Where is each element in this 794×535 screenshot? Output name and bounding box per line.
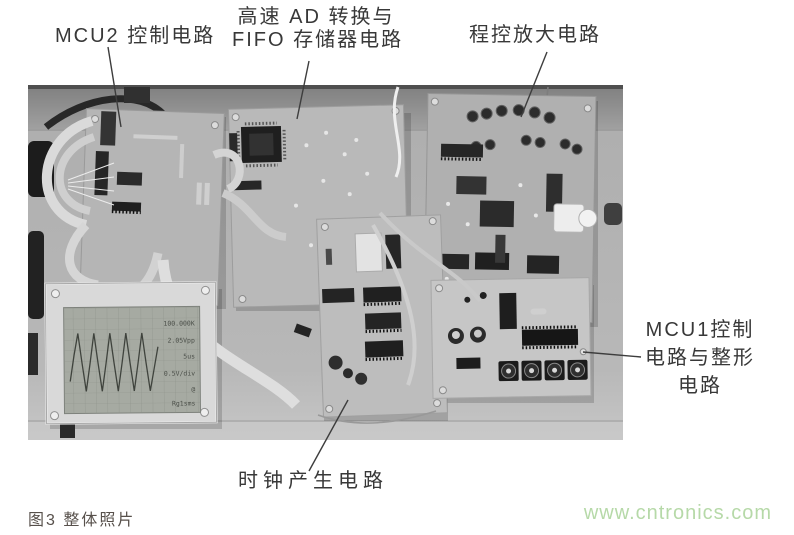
label-programmable-amplifier-circuit: 程控放大电路	[469, 24, 601, 47]
lcd-module: 100.000K 2.05Vpp 5us 0.5V/div @ Rg1sms	[45, 282, 216, 423]
figure-page: MCU2 控制电路 高速 AD 转换与 FIFO 存储器电路 程控放大电路 MC…	[0, 0, 794, 535]
label-mcu1-line3: 电路	[632, 372, 768, 400]
photo-scene: 100.000K 2.05Vpp 5us 0.5V/div @ Rg1sms	[28, 85, 623, 440]
bnc-plug	[604, 203, 622, 225]
label-ad-fifo-line1: 高速 AD 转换与	[232, 6, 400, 29]
lcd-readout-frequency: 100.000K	[163, 319, 194, 327]
circuit-boards-photo: 100.000K 2.05Vpp 5us 0.5V/div @ Rg1sms	[28, 85, 623, 440]
label-mcu2-control-circuit: MCU2 控制电路	[55, 25, 215, 48]
label-clock-generation-circuit: 时钟产生电路	[238, 470, 388, 493]
lcd-readout-timebase: 5us	[183, 352, 195, 360]
lcd-readout-status: Rg1sms	[172, 399, 196, 407]
lcd-readout-vpp: 2.05Vpp	[167, 336, 195, 344]
mcu1-board	[431, 278, 591, 399]
label-mcu1-line1: MCU1控制	[632, 316, 768, 344]
label-mcu1-control-shaping-circuit: MCU1控制 电路与整形 电路	[632, 316, 768, 400]
lcd-readout-vdiv: 0.5V/div	[164, 369, 195, 377]
label-ad-fifo-line2: FIFO 存储器电路	[232, 29, 400, 52]
figure-caption: 图3 整体照片	[28, 506, 135, 530]
label-ad-fifo-circuit: 高速 AD 转换与 FIFO 存储器电路	[232, 6, 400, 52]
watermark-url: www.cntronics.com	[584, 502, 772, 525]
lcd-readout-marker: @	[191, 385, 195, 393]
label-mcu1-line2: 电路与整形	[632, 344, 768, 372]
